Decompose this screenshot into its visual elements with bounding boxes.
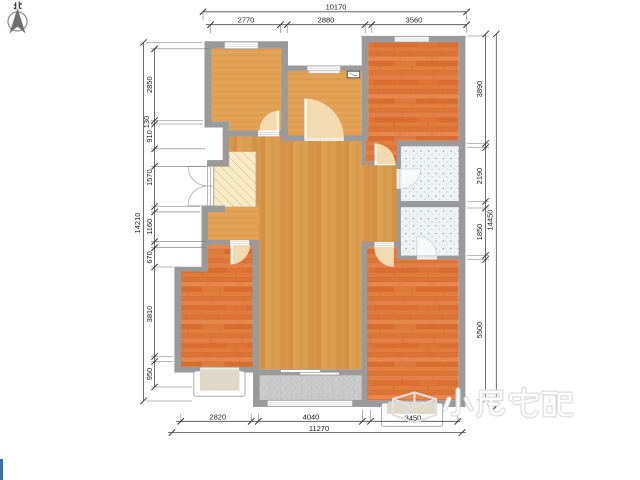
svg-text:3890: 3890 — [475, 81, 484, 98]
svg-text:2820: 2820 — [209, 413, 226, 422]
svg-text:10170: 10170 — [326, 3, 347, 12]
svg-text:1570: 1570 — [145, 169, 154, 186]
svg-text:14210: 14210 — [133, 213, 142, 234]
svg-text:2880: 2880 — [318, 16, 335, 25]
svg-text:1850: 1850 — [475, 224, 484, 241]
svg-text:11270: 11270 — [309, 424, 329, 433]
svg-text:910: 910 — [145, 130, 154, 143]
svg-text:2850: 2850 — [145, 76, 154, 93]
svg-text:14450: 14450 — [486, 210, 495, 231]
svg-text:3560: 3560 — [406, 16, 423, 25]
svg-text:4040: 4040 — [303, 413, 320, 422]
svg-text:670: 670 — [145, 251, 154, 264]
svg-text:5500: 5500 — [475, 322, 484, 339]
svg-text:2190: 2190 — [475, 168, 484, 185]
svg-text:130: 130 — [142, 116, 151, 129]
svg-text:3810: 3810 — [145, 306, 154, 323]
svg-text:2770: 2770 — [238, 16, 255, 25]
svg-text:950: 950 — [145, 368, 154, 381]
svg-text:1160: 1160 — [145, 219, 154, 235]
